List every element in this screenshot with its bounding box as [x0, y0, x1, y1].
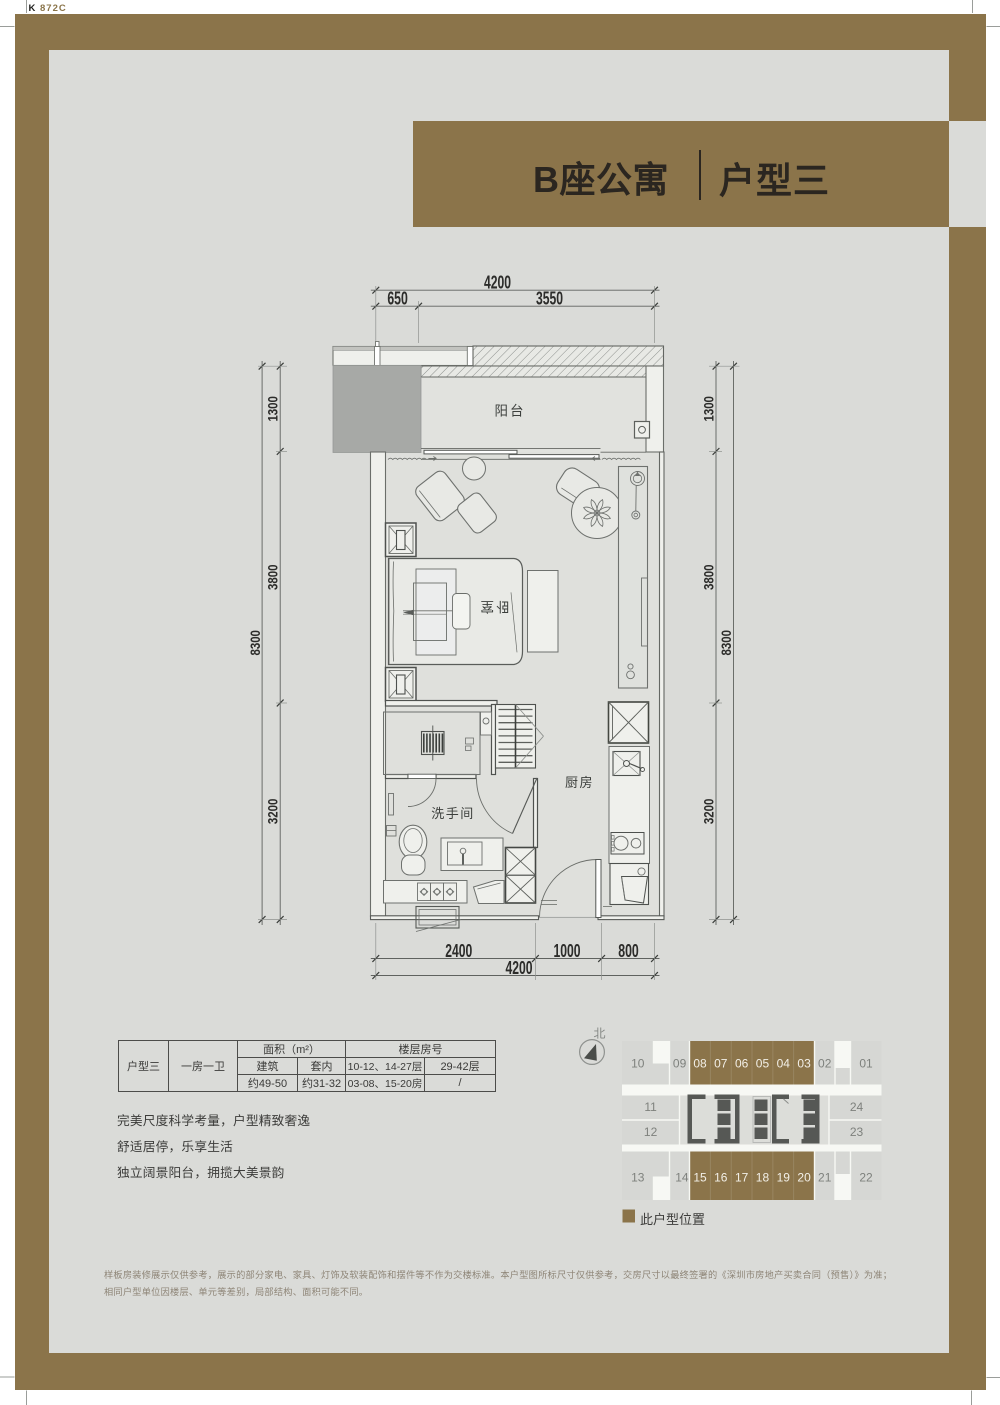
svg-text:19: 19	[777, 1171, 791, 1185]
svg-text:13: 13	[631, 1171, 645, 1185]
svg-text:23: 23	[850, 1125, 864, 1139]
svg-text:08: 08	[693, 1057, 707, 1071]
svg-text:8300: 8300	[718, 630, 734, 656]
svg-text:17: 17	[735, 1171, 749, 1185]
svg-text:04: 04	[777, 1057, 791, 1071]
svg-text:3800: 3800	[700, 564, 716, 590]
svg-text:12: 12	[644, 1125, 658, 1139]
svg-text:厨房: 厨房	[565, 775, 594, 790]
svg-text:10: 10	[631, 1057, 645, 1071]
svg-text:18: 18	[756, 1171, 770, 1185]
svg-text:21: 21	[818, 1171, 832, 1185]
svg-text:14: 14	[675, 1171, 689, 1185]
svg-text:8300: 8300	[247, 630, 263, 656]
svg-text:650: 650	[387, 287, 408, 308]
svg-text:01: 01	[859, 1057, 873, 1071]
svg-text:1300: 1300	[265, 396, 281, 422]
svg-text:4200: 4200	[506, 957, 533, 978]
svg-text:卧室: 卧室	[479, 599, 510, 615]
svg-text:2400: 2400	[445, 940, 472, 961]
svg-text:07: 07	[714, 1057, 728, 1071]
svg-text:3200: 3200	[700, 798, 716, 824]
svg-text:3200: 3200	[265, 798, 281, 824]
svg-text:洗手间: 洗手间	[431, 806, 475, 821]
svg-text:06: 06	[735, 1057, 749, 1071]
svg-text:03: 03	[797, 1057, 811, 1071]
svg-text:800: 800	[618, 940, 639, 961]
svg-text:3550: 3550	[536, 287, 563, 308]
svg-text:4200: 4200	[484, 272, 511, 293]
svg-text:02: 02	[818, 1057, 832, 1071]
svg-text:3800: 3800	[265, 564, 281, 590]
svg-text:22: 22	[859, 1171, 873, 1185]
svg-text:05: 05	[756, 1057, 770, 1071]
svg-text:1300: 1300	[700, 396, 716, 422]
svg-text:20: 20	[797, 1171, 811, 1185]
svg-text:24: 24	[850, 1100, 864, 1114]
svg-text:北: 北	[593, 1027, 605, 1041]
svg-text:09: 09	[673, 1057, 687, 1071]
svg-text:15: 15	[693, 1171, 707, 1185]
svg-text:16: 16	[714, 1171, 728, 1185]
svg-text:11: 11	[644, 1100, 657, 1114]
svg-text:阳台: 阳台	[495, 404, 526, 419]
svg-text:1000: 1000	[554, 940, 581, 961]
